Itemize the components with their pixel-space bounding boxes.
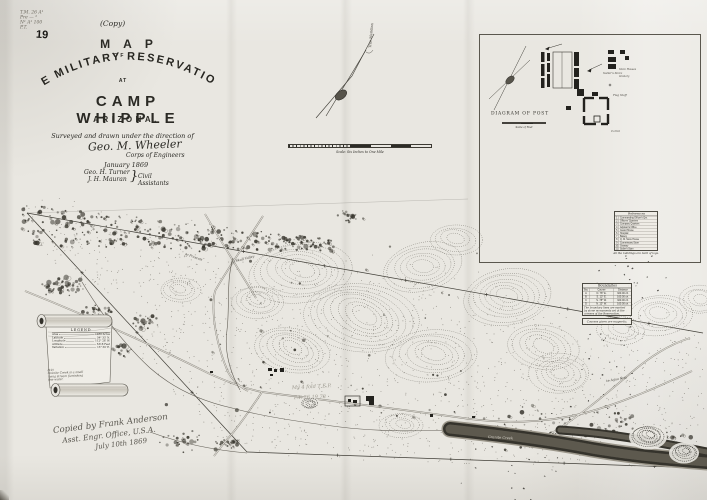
inset-border-box (479, 34, 701, 263)
road-to-skull-valley-label: to Skull Valley (231, 249, 278, 264)
scroll-top-roll (37, 315, 112, 328)
granary-label: Granary (619, 75, 640, 78)
scale-caption: Scale: Six Inches to One Mile (288, 150, 432, 154)
legend-title: LEGEND (52, 328, 110, 333)
map-title-word: MAP (60, 37, 193, 51)
references-footer-wrap: All the buildings are built of logs. (604, 252, 668, 258)
copy-note: (Copy) (100, 19, 125, 28)
survey-table-header: Sta. Course Distance (583, 288, 632, 292)
reference-row: 12Stables (615, 250, 658, 251)
scale-caption-wrap: Scale: Six Inches to One Mile (288, 150, 432, 158)
survey-row: AN. 78° E.320.00 ch. (583, 292, 632, 296)
inset-title: DIAGRAM OF POST (491, 111, 561, 116)
flag-staff-label: Flag Staff (613, 94, 640, 97)
inset-scale-caption-wrap: Scale of Feet (502, 126, 546, 132)
corner-smudge (0, 490, 9, 500)
road-to-agua-fria-label: to Agua Fria (606, 372, 647, 383)
date-line: January 1869 (104, 161, 148, 169)
scale-bar-segment (411, 145, 431, 147)
pencil-note-line: P.T. 26 19 78 (294, 393, 358, 401)
scanned-map-page: True Meridian (0, 0, 707, 500)
survey-table-footer-box: Courses given are magnetic. (582, 318, 632, 325)
references-footer: All the buildings are built of logs. (604, 252, 668, 255)
assistants-role: Civil Assistants (138, 173, 174, 187)
legend-note-block: (19) Granite Creek is a small living str… (48, 367, 111, 395)
map-title-at: AT (60, 78, 186, 84)
scale-bar (288, 144, 432, 148)
survey-row: BS. 12° E.160.00 ch. (583, 295, 632, 299)
inset-scale-bar (502, 122, 546, 124)
arizona-subtitle: ARIZONA. (60, 115, 190, 124)
references-table: References 1Commanding Officer's Qrs. 2O… (614, 211, 658, 251)
scale-bar-segment (351, 145, 371, 147)
meridian-diagram: True Meridian (316, 22, 374, 118)
granite-creek-label: Granite Creek (488, 435, 538, 442)
arched-title: THE MILITARY RESERVATION (26, 50, 222, 94)
scale-bar-segment (371, 145, 391, 147)
scale-bar-segment (391, 145, 411, 147)
faint-survey-lines (27, 199, 468, 213)
corral-label: Corral (611, 130, 629, 133)
inset-scale-caption: Scale of Feet (502, 126, 546, 129)
survey-row: DN. 12° W.160.00 ch. (583, 302, 632, 306)
survey-notes: The boundary lines are marked by stone m… (583, 306, 632, 317)
survey-table-footer: Courses given are magnetic. (583, 319, 631, 325)
inset-title-wrap: DIAGRAM OF POST (491, 111, 561, 121)
legend-block: LEGEND Area1280 Acres Latitude34° 33′ N.… (52, 328, 110, 371)
assistants-block: Geo. H. Turner J. H. Mauran } Civil Assi… (84, 170, 174, 186)
corps-line: Corps of Engineers (126, 152, 185, 159)
legend-row: Variation13° 30′ E. (52, 346, 110, 349)
survey-table: Boundaries Sta. Course Distance AN. 78° … (582, 283, 632, 316)
pencil-note: P.T. 26 19 78 (294, 393, 358, 406)
survey-row: CS. 78° W.320.00 ch. (583, 299, 632, 303)
corner-note-number: 19 (36, 29, 49, 42)
scale-bar-fine-ticks (289, 145, 351, 147)
